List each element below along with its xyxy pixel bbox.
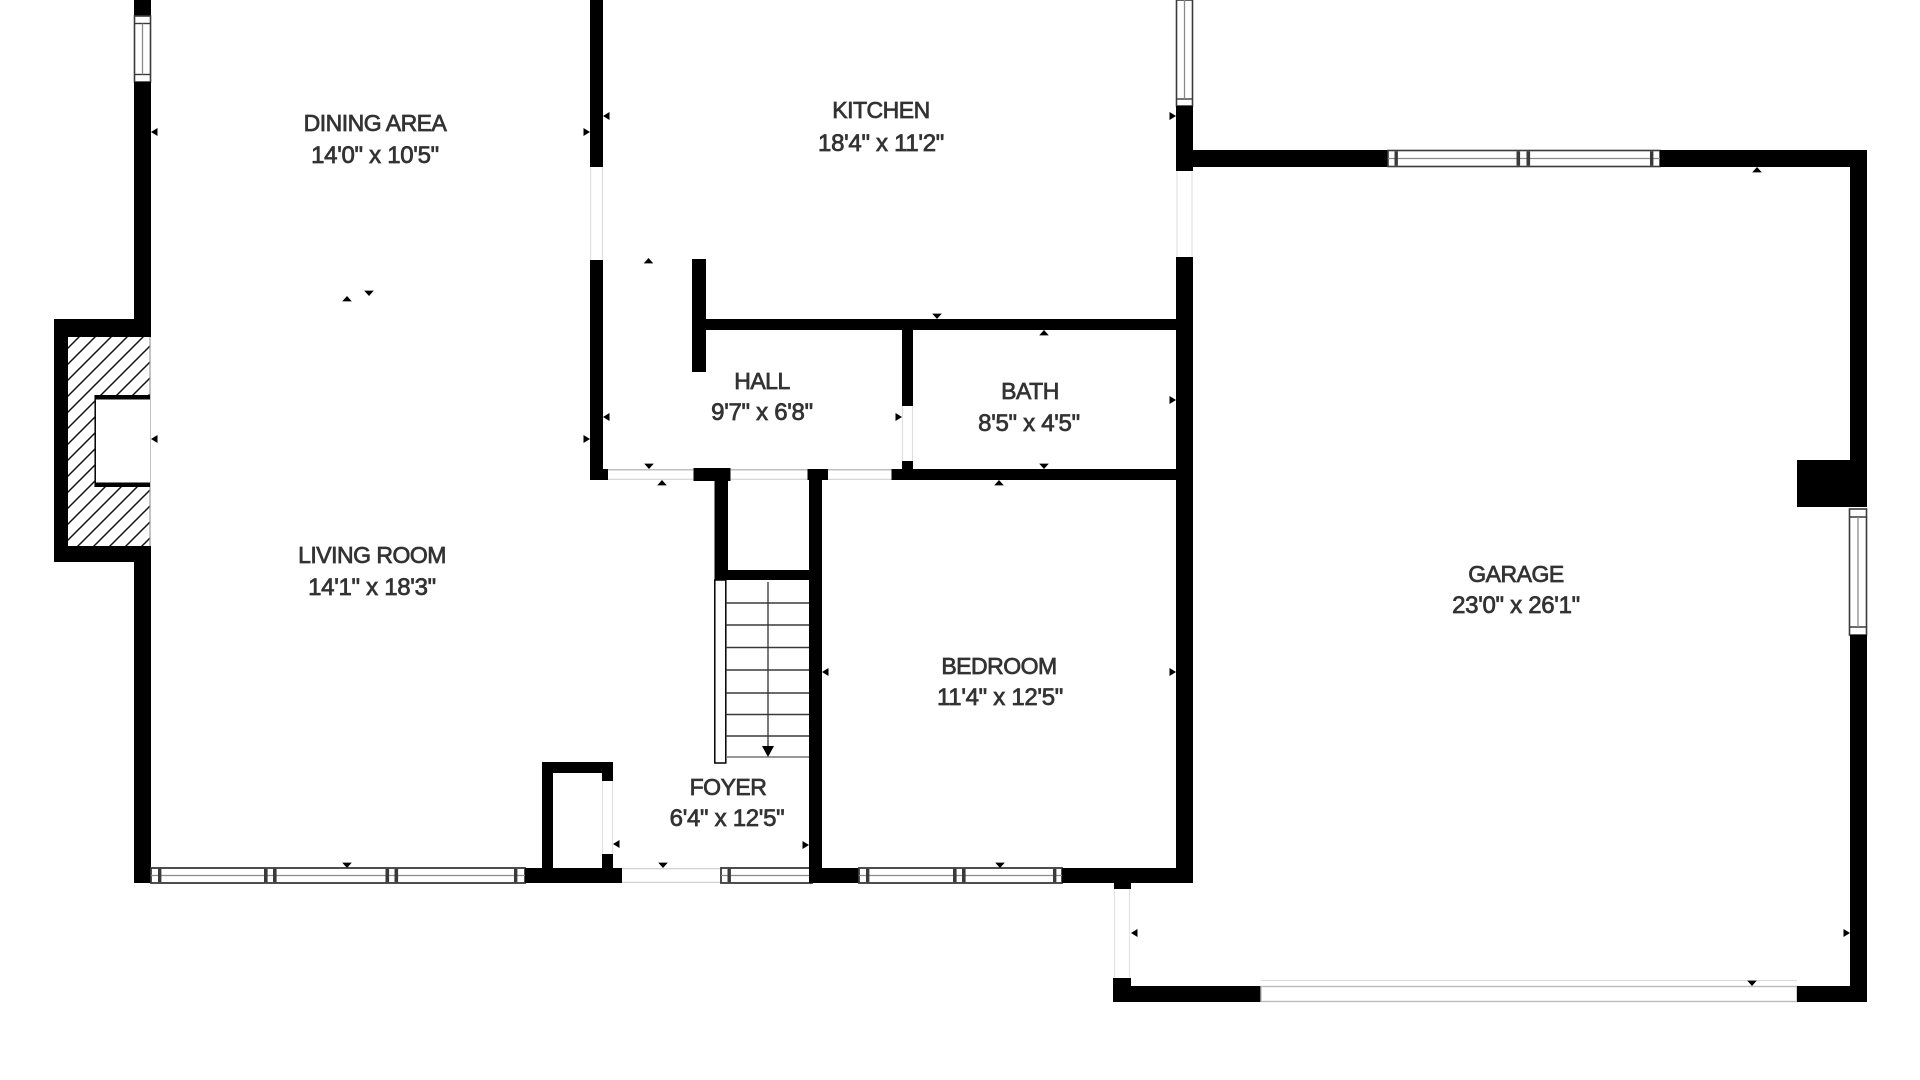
svg-text:6'4" x 12'5": 6'4" x 12'5" <box>670 805 785 832</box>
svg-text:11'4" x 12'5": 11'4" x 12'5" <box>937 684 1063 711</box>
svg-text:18'4" x 11'2": 18'4" x 11'2" <box>818 130 944 157</box>
svg-text:14'1" x 18'3": 14'1" x 18'3" <box>308 574 436 601</box>
svg-text:BATH: BATH <box>1001 378 1059 404</box>
svg-text:LIVING ROOM: LIVING ROOM <box>298 542 446 568</box>
svg-text:BEDROOM: BEDROOM <box>941 653 1056 679</box>
svg-text:14'0" x 10'5": 14'0" x 10'5" <box>311 142 439 169</box>
svg-text:DINING AREA: DINING AREA <box>304 110 448 136</box>
svg-text:GARAGE: GARAGE <box>1468 561 1564 587</box>
svg-text:KITCHEN: KITCHEN <box>832 97 929 123</box>
svg-text:8'5" x 4'5": 8'5" x 4'5" <box>978 410 1080 437</box>
svg-text:9'7" x 6'8": 9'7" x 6'8" <box>711 399 813 426</box>
svg-text:HALL: HALL <box>734 368 790 394</box>
svg-text:FOYER: FOYER <box>690 774 767 800</box>
svg-text:23'0" x 26'1": 23'0" x 26'1" <box>1452 592 1580 619</box>
